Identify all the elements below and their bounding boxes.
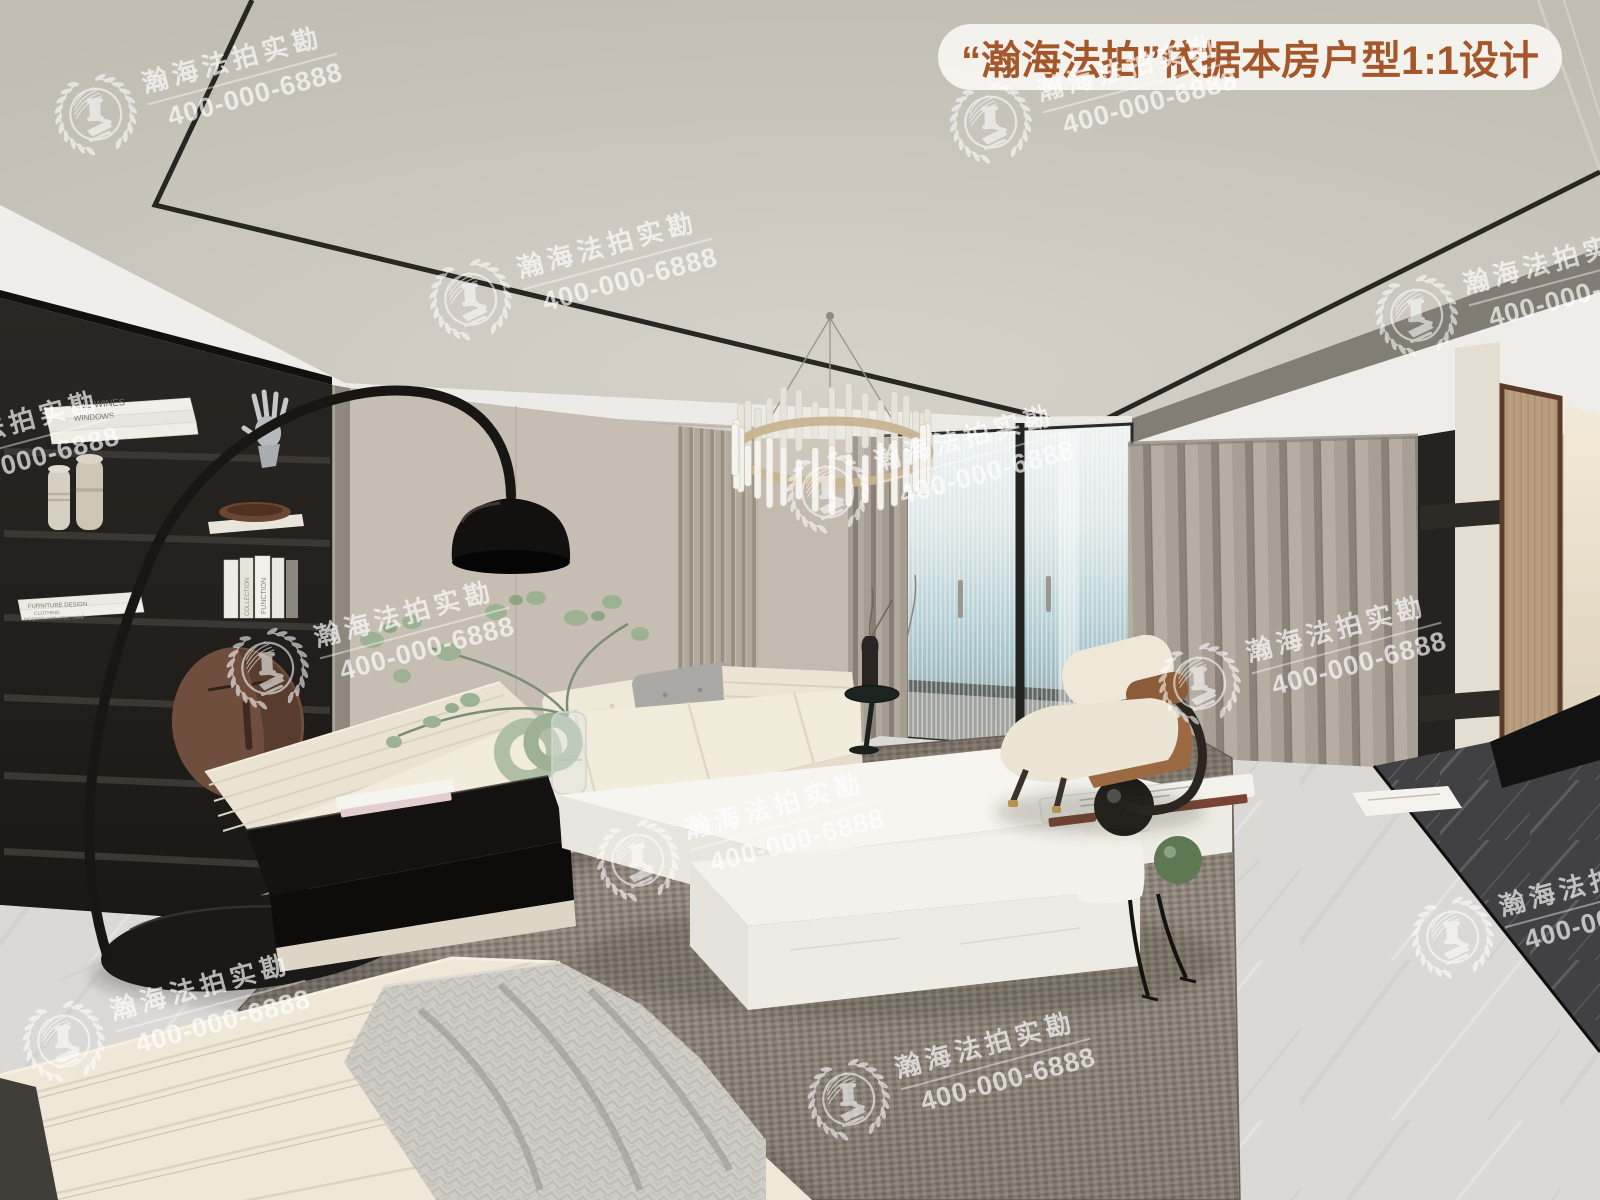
book-spine-title: COLLECTION bbox=[245, 578, 251, 616]
living-room-render: FINE WINES WINDOWS FUNCTION COLLECTION F… bbox=[0, 0, 1600, 1200]
promo-badge: “瀚海法拍”依据本房户型1:1设计 bbox=[938, 24, 1562, 90]
shelf-books-standing: FUNCTION COLLECTION bbox=[224, 556, 298, 618]
promo-badge-text: “瀚海法拍”依据本房户型1:1设计 bbox=[961, 28, 1539, 86]
door-handle bbox=[958, 580, 963, 618]
book-spine-title: FUNCTION bbox=[261, 578, 268, 614]
glass-vase bbox=[552, 712, 586, 794]
screenshot-root: FINE WINES WINDOWS FUNCTION COLLECTION F… bbox=[0, 0, 1600, 1200]
door-handle bbox=[1046, 576, 1051, 612]
